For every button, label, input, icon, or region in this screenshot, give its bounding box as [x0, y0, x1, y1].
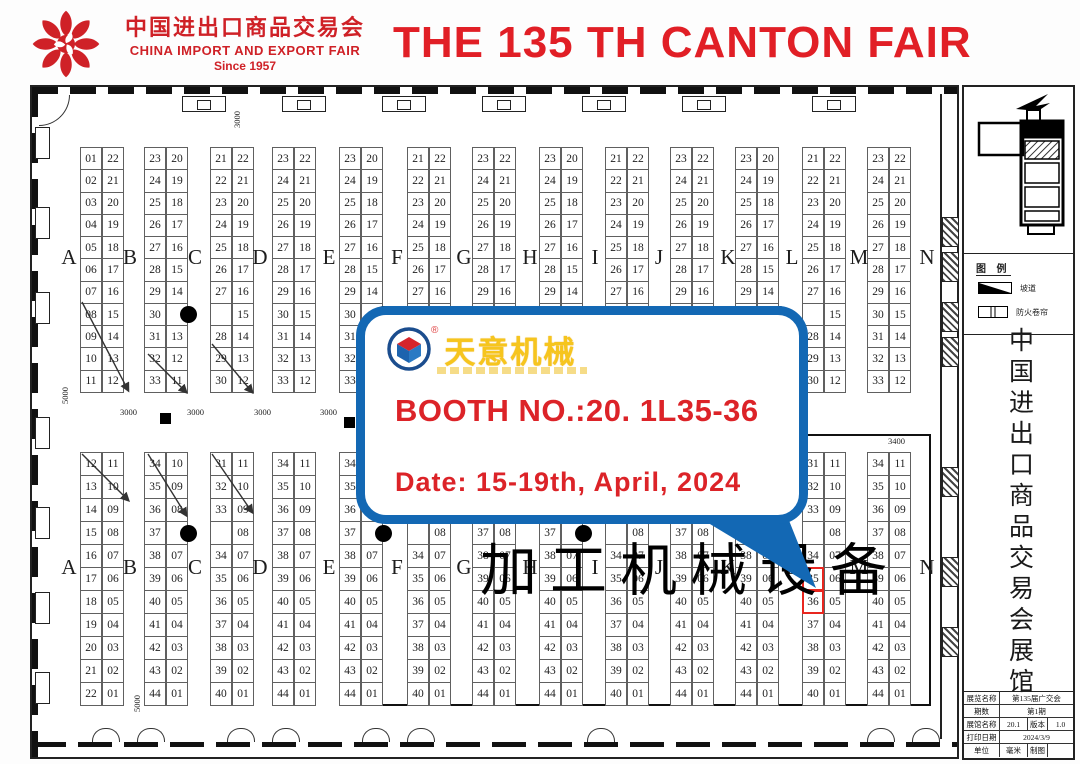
booth-cell: 15	[80, 521, 102, 545]
booth-cell: 27	[472, 236, 494, 259]
booth-cell: 28	[339, 258, 361, 281]
booth-cell: 13	[889, 347, 911, 370]
booth-cell: 41	[339, 613, 361, 637]
booth-cell: 06	[166, 567, 188, 591]
booth-cell: 17	[102, 258, 124, 281]
booth-cell: 03	[561, 636, 583, 660]
booth-cell: 02	[361, 659, 383, 683]
booth-cell: 05	[80, 236, 102, 259]
door-arc	[227, 728, 255, 742]
booth-cell: 40	[144, 590, 166, 614]
booth-cell: 03	[627, 636, 649, 660]
booth-cell: 44	[735, 682, 757, 706]
entrance-vestibule	[382, 96, 426, 112]
table-value: 1.0	[1048, 718, 1073, 730]
booth-cell: 32	[210, 475, 232, 499]
booth-cell: 43	[144, 659, 166, 683]
booth-cell: 02	[102, 659, 124, 683]
booth-cell: 33	[210, 498, 232, 522]
booth-cell: 02	[824, 659, 846, 683]
booth-cell: 24	[144, 169, 166, 192]
booth-cell: 06	[429, 567, 451, 591]
facility-room	[942, 337, 959, 367]
booth-cell: 04	[294, 613, 316, 637]
booth-cell: 01	[561, 682, 583, 706]
booth-cell: 01	[757, 682, 779, 706]
booth-cell: 15	[166, 258, 188, 281]
booth-cell: 22	[692, 147, 714, 170]
booth-cell: 33	[867, 370, 889, 393]
entrance-vestibule	[282, 96, 326, 112]
entrance-vestibule	[682, 96, 726, 112]
booth-cell: 14	[80, 498, 102, 522]
booth-cell: 17	[361, 214, 383, 237]
booth-cell: 37	[339, 521, 361, 545]
booth-cell: 17	[232, 258, 254, 281]
booth-cell: 40	[272, 590, 294, 614]
booth-cell: 23	[272, 147, 294, 170]
booth-cell: 38	[605, 636, 627, 660]
booth-cell: 05	[166, 590, 188, 614]
booth-cell: 20	[561, 147, 583, 170]
booth-cell: 27	[802, 281, 824, 304]
side-room	[35, 592, 50, 624]
booth-cell: 44	[472, 682, 494, 706]
booth-cell: 04	[824, 613, 846, 637]
booth-cell: 20	[294, 192, 316, 215]
booth-cell: 25	[210, 236, 232, 259]
booth-cell: 21	[824, 169, 846, 192]
booth-cell: 13	[294, 347, 316, 370]
booth-cell: 02	[889, 659, 911, 683]
booth-cell: 23	[735, 147, 757, 170]
booth-cell: 24	[867, 169, 889, 192]
booth-cell: 18	[561, 192, 583, 215]
booth-cell: 20	[361, 147, 383, 170]
door-arc	[912, 728, 940, 742]
booth-cell: 05	[361, 590, 383, 614]
booth-cell: 16	[692, 281, 714, 304]
booth-cell: 06	[232, 567, 254, 591]
aisle-letter-A: A	[61, 245, 76, 270]
booth-cell: 26	[539, 214, 561, 237]
facility-room	[942, 467, 959, 497]
booth-cell: 38	[272, 544, 294, 568]
booth-cell: 06	[80, 258, 102, 281]
booth-number-text: BOOTH NO.:20. 1L35-36	[395, 393, 759, 429]
booth-cell: 03	[232, 636, 254, 660]
booth-cell: 26	[670, 214, 692, 237]
booth-cell: 26	[735, 214, 757, 237]
booth-cell: 30	[144, 303, 166, 326]
booth-cell: 03	[889, 636, 911, 660]
booth-cell: 19	[294, 214, 316, 237]
booth-cell: 27	[272, 236, 294, 259]
booth-cell: 21	[802, 147, 824, 170]
booth-cell: 06	[361, 567, 383, 591]
booth-cell: 41	[472, 613, 494, 637]
booth-cell: 04	[494, 613, 516, 637]
booth-cell: 07	[361, 544, 383, 568]
booth-cell: 17	[294, 258, 316, 281]
booth-cell: 25	[802, 236, 824, 259]
booth-cell: 22	[494, 147, 516, 170]
booth-cell: 22	[605, 169, 627, 192]
booth-cell: 01	[361, 682, 383, 706]
booth-cell: 19	[824, 214, 846, 237]
booth-cell: 22	[824, 147, 846, 170]
booth-cell: 08	[429, 521, 451, 545]
door-arc	[92, 728, 120, 742]
facility-room	[942, 252, 959, 282]
table-label: 单位	[964, 744, 1000, 757]
booth-cell: 16	[429, 281, 451, 304]
aisle-letter-G: G	[456, 245, 471, 270]
booth-cell: 13	[166, 325, 188, 348]
booth-cell: 24	[407, 214, 429, 237]
title-block-table: 展览名称 第135届广交会 期数 第1期 展馆名称 20.1 版本 1.0 打印…	[964, 691, 1073, 758]
booth-cell: 01	[166, 682, 188, 706]
dimension-label: 3000	[187, 407, 204, 417]
booth-cell: 10	[824, 475, 846, 499]
booth-cell: 14	[232, 325, 254, 348]
booth-cell: 24	[605, 214, 627, 237]
booth-cell: 20	[232, 192, 254, 215]
booth-cell: 17	[166, 214, 188, 237]
booth-cell: 25	[605, 236, 627, 259]
booth-cell: 42	[539, 636, 561, 660]
booth-cell: 14	[166, 281, 188, 304]
booth-cell: 15	[102, 303, 124, 326]
booth-cell: 01	[429, 682, 451, 706]
booth-cell: 21	[294, 169, 316, 192]
booth-cell: 35	[144, 475, 166, 499]
booth-cell: 23	[407, 192, 429, 215]
booth-cell: 35	[407, 567, 429, 591]
booth-cell: 34	[272, 452, 294, 476]
booth-cell: 28	[144, 258, 166, 281]
booth-cell: 36	[272, 498, 294, 522]
booth-cell: 04	[692, 613, 714, 637]
booth-cell: 19	[102, 214, 124, 237]
booth-cell: 18	[102, 236, 124, 259]
booth-cell: 24	[472, 169, 494, 192]
fire-shutter-legend-icon	[978, 306, 1008, 318]
aisle-letter-F: F	[391, 245, 403, 270]
booth-cell: 20	[80, 636, 102, 660]
booth-cell: 24	[272, 169, 294, 192]
booth-cell: 25	[272, 192, 294, 215]
booth-cell: 23	[144, 147, 166, 170]
booth-cell: 23	[339, 147, 361, 170]
booth-cell: 04	[757, 613, 779, 637]
booth-cell: 42	[272, 636, 294, 660]
booth-cell: 16	[889, 281, 911, 304]
table-value: 毫米	[1000, 744, 1028, 757]
booth-cell: 14	[361, 281, 383, 304]
booth-cell: 13	[80, 475, 102, 499]
booth-cell: 41	[144, 613, 166, 637]
booth-cell: 22	[294, 147, 316, 170]
table-label: 展览名称	[964, 692, 1000, 704]
booth-cell: 11	[232, 452, 254, 476]
booth-cell: 19	[80, 613, 102, 637]
booth-cell: 15	[294, 303, 316, 326]
booth-cell: 16	[757, 236, 779, 259]
dimension-label: 3000	[320, 407, 337, 417]
booth-cell: 40	[802, 682, 824, 706]
booth-cell: 08	[80, 303, 102, 326]
table-label: 制图	[1028, 744, 1048, 757]
booth-cell: 27	[605, 281, 627, 304]
side-room	[35, 207, 50, 239]
dimension-label: 3000	[120, 407, 137, 417]
booth-cell: 04	[102, 613, 124, 637]
booth-cell: 27	[210, 281, 232, 304]
booth-cell: 27	[407, 281, 429, 304]
booth-cell: 44	[539, 682, 561, 706]
booth-cell: 39	[407, 659, 429, 683]
booth-cell: 16	[494, 281, 516, 304]
dimension-label: 5000	[60, 387, 70, 404]
side-room	[35, 672, 50, 704]
booth-cell: 03	[166, 636, 188, 660]
booth-cell: 34	[867, 452, 889, 476]
door-arc	[39, 95, 70, 126]
booth-cell: 01	[824, 682, 846, 706]
booth-cell: 18	[889, 236, 911, 259]
booth-cell: 03	[692, 636, 714, 660]
page-title: THE 135 TH CANTON FAIR	[393, 18, 1063, 68]
booth-cell: 09	[102, 498, 124, 522]
booth-cell: 01	[889, 682, 911, 706]
booth-cell: 23	[670, 147, 692, 170]
booth-cell: 04	[361, 613, 383, 637]
booth-cell: 01	[627, 682, 649, 706]
booth-cell: 17	[627, 258, 649, 281]
booth-cell: 23	[605, 192, 627, 215]
legend-item-label: 坡道	[1020, 283, 1036, 294]
booth-cell: 08	[294, 521, 316, 545]
booth-cell: 15	[757, 258, 779, 281]
booth-cell: 24	[539, 169, 561, 192]
booth-cell: 01	[102, 682, 124, 706]
booth-cell: 21	[494, 169, 516, 192]
booth-cell: 32	[272, 347, 294, 370]
booth-cell: 16	[561, 236, 583, 259]
booth-cell: 15	[232, 303, 254, 326]
booth-cell: 04	[627, 613, 649, 637]
booth-cell: 28	[272, 258, 294, 281]
legend-title: 图 例	[976, 260, 1011, 276]
booth-cell: 29	[472, 281, 494, 304]
table-value: 第1期	[1000, 705, 1073, 717]
booth-cell: 04	[889, 613, 911, 637]
booth-cell: 44	[670, 682, 692, 706]
booth-cell: 26	[407, 258, 429, 281]
booth-cell: 18	[166, 192, 188, 215]
table-label: 期数	[964, 705, 1000, 717]
booth-cell: 24	[210, 214, 232, 237]
booth-cell: 35	[210, 567, 232, 591]
booth-cell: 42	[472, 636, 494, 660]
side-room	[35, 292, 50, 324]
booth-cell: 16	[361, 236, 383, 259]
booth-cell: 31	[210, 452, 232, 476]
legend: 图 例 坡道 防火卷帘	[964, 254, 1073, 335]
booth-cell: 03	[494, 636, 516, 660]
booth-cell: 20	[494, 192, 516, 215]
table-value: 2024/3/9	[1000, 731, 1073, 743]
booth-cell: 16	[166, 236, 188, 259]
booth-cell: 31	[144, 325, 166, 348]
booth-cell: 16	[80, 544, 102, 568]
booth-cell: 07	[102, 544, 124, 568]
booth-cell: 44	[339, 682, 361, 706]
booth-cell: 43	[339, 659, 361, 683]
booth-cell: 23	[210, 192, 232, 215]
booth-cell: 41	[735, 613, 757, 637]
table-value: 第135届广交会	[1000, 692, 1073, 704]
facility-room	[942, 627, 959, 657]
booth-cell: 03	[361, 636, 383, 660]
aisle-letter-C: C	[188, 555, 202, 580]
pillar-dot	[180, 306, 197, 323]
booth-cell: 14	[757, 281, 779, 304]
booth-cell: 18	[80, 590, 102, 614]
booth-cell: 28	[472, 258, 494, 281]
booth-cell: 02	[232, 659, 254, 683]
canton-fair-floorplan-flyer: { "header": { "logo_cn": "中国进出口商品交易会", "…	[0, 0, 1080, 764]
booth-cell: 26	[339, 214, 361, 237]
aisle-letter-I: I	[592, 245, 599, 270]
booth-cell: 03	[757, 636, 779, 660]
booth-cell: 03	[80, 192, 102, 215]
booth-cell	[210, 521, 232, 545]
booth-cell: 29	[272, 281, 294, 304]
aisle-letter-C: C	[188, 245, 202, 270]
booth-cell: 11	[102, 452, 124, 476]
booth-cell: 27	[670, 236, 692, 259]
booth-cell: 44	[272, 682, 294, 706]
booth-cell: 21	[627, 169, 649, 192]
booth-cell: 17	[80, 567, 102, 591]
booth-cell: 24	[670, 169, 692, 192]
aisle-letter-N: N	[919, 555, 934, 580]
booth-cell: 17	[889, 258, 911, 281]
booth-cell: 02	[692, 659, 714, 683]
booth-cell: 22	[80, 682, 102, 706]
booth-cell: 13	[824, 347, 846, 370]
booth-cell: 36	[210, 590, 232, 614]
booth-cell: 25	[339, 192, 361, 215]
brand-tagline-decoration	[437, 367, 587, 374]
booth-cell: 10	[80, 347, 102, 370]
booth-cell: 14	[889, 325, 911, 348]
booth-cell: 22	[102, 147, 124, 170]
booth-cell: 21	[102, 169, 124, 192]
booth-cell: 01	[294, 682, 316, 706]
booth-cell: 17	[561, 214, 583, 237]
booth-cell: 15	[889, 303, 911, 326]
booth-cell: 19	[166, 169, 188, 192]
booth-cell: 07	[429, 544, 451, 568]
booth-cell: 18	[627, 236, 649, 259]
booth-cell: 28	[867, 258, 889, 281]
booth-cell: 25	[867, 192, 889, 215]
booth-cell: 37	[802, 613, 824, 637]
entrance-vestibule	[482, 96, 526, 112]
booth-cell: 25	[670, 192, 692, 215]
booth-cell: 15	[361, 258, 383, 281]
venue-minimap	[964, 87, 1073, 254]
ramp-legend-icon	[978, 282, 1012, 294]
booth-cell: 26	[210, 258, 232, 281]
booth-cell: 08	[166, 498, 188, 522]
booth-cell: 28	[210, 325, 232, 348]
booth-cell: 22	[232, 147, 254, 170]
dimension-label: 3000	[254, 407, 271, 417]
booth-cell: 36	[407, 590, 429, 614]
booth-cell: 05	[102, 590, 124, 614]
booth-cell: 07	[232, 544, 254, 568]
booth-cell: 38	[407, 636, 429, 660]
booth-cell: 33	[272, 370, 294, 393]
booth-cell: 39	[802, 659, 824, 683]
booth-cell: 29	[670, 281, 692, 304]
booth-cell: 23	[867, 147, 889, 170]
aisle-letter-G: G	[456, 555, 471, 580]
side-room	[35, 417, 50, 449]
aisle-letter-M: M	[850, 245, 869, 270]
booth-cell: 20	[429, 192, 451, 215]
booth-cell: 41	[272, 613, 294, 637]
door-arc	[272, 728, 300, 742]
door-arc	[867, 728, 895, 742]
booth-cell: 10	[294, 475, 316, 499]
booth-cell: 22	[802, 169, 824, 192]
booth-cell: 21	[889, 169, 911, 192]
booth-cell: 12	[889, 370, 911, 393]
booth-cell: 06	[294, 567, 316, 591]
aisle-letter-L: L	[786, 245, 799, 270]
booth-cell: 14	[294, 325, 316, 348]
booth-cell: 42	[867, 636, 889, 660]
entrance-vestibule	[582, 96, 626, 112]
booth-cell: 38	[144, 544, 166, 568]
booth-cell: 18	[232, 236, 254, 259]
aisle-letter-H: H	[522, 245, 537, 270]
booth-cell: 44	[867, 682, 889, 706]
booth-cell: 41	[539, 613, 561, 637]
booth-cell: 14	[824, 325, 846, 348]
category-label: 加工机械设备	[480, 525, 900, 607]
elevator-symbol	[160, 413, 171, 424]
booth-cell: 43	[539, 659, 561, 683]
booth-cell: 20	[627, 192, 649, 215]
booth-cell: 11	[889, 452, 911, 476]
booth-cell: 30	[867, 303, 889, 326]
booth-cell: 19	[627, 214, 649, 237]
booth-cell: 11	[294, 452, 316, 476]
booth-cell: 23	[539, 147, 561, 170]
booth-cell: 36	[144, 498, 166, 522]
booth-cell: 43	[472, 659, 494, 683]
brand-name: 天意机械	[444, 327, 576, 372]
booth-cell: 34	[210, 544, 232, 568]
entrance-vestibule	[182, 96, 226, 112]
fair-logo: 中国进出口商品交易会 CHINA IMPORT AND EXPORT FAIR …	[28, 6, 378, 82]
